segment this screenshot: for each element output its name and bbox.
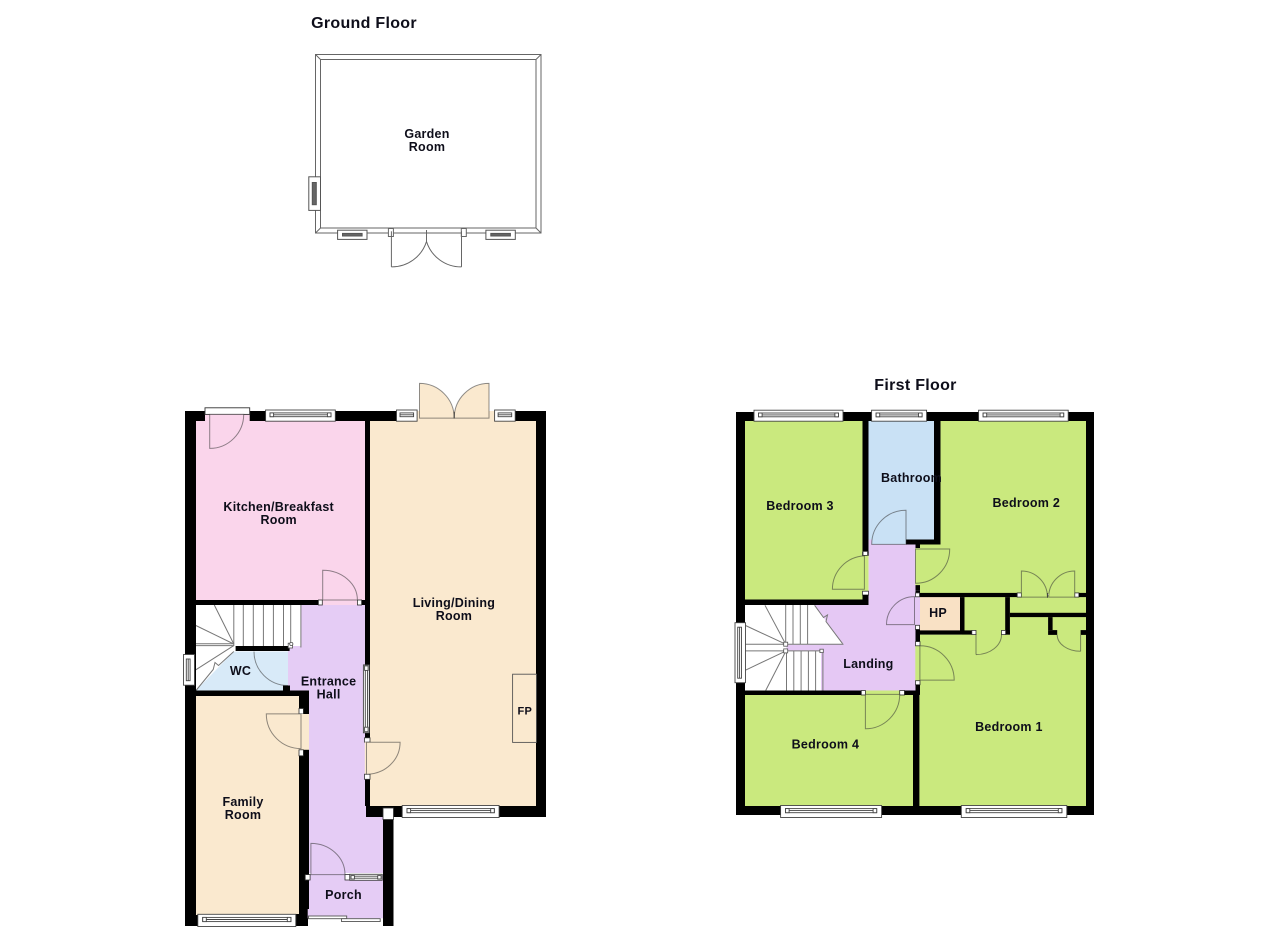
svg-text:Entrance: Entrance	[301, 675, 357, 689]
svg-text:Family: Family	[222, 795, 263, 809]
svg-text:WC: WC	[230, 664, 251, 678]
svg-text:First Floor: First Floor	[874, 377, 956, 394]
svg-text:Room: Room	[225, 808, 261, 822]
svg-text:Room: Room	[409, 140, 445, 154]
svg-text:Room: Room	[436, 609, 472, 623]
svg-text:Landing: Landing	[843, 657, 893, 671]
svg-text:Bedroom 2: Bedroom 2	[993, 496, 1061, 510]
svg-text:Ground Floor: Ground Floor	[311, 15, 417, 32]
svg-text:Room: Room	[260, 513, 296, 527]
svg-text:HP: HP	[929, 606, 947, 620]
svg-text:Bedroom 3: Bedroom 3	[766, 499, 834, 513]
svg-text:Hall: Hall	[317, 688, 341, 702]
svg-text:Porch: Porch	[325, 888, 362, 902]
svg-text:Kitchen/Breakfast: Kitchen/Breakfast	[223, 500, 334, 514]
svg-text:Bedroom 1: Bedroom 1	[975, 720, 1043, 734]
svg-text:Bedroom 4: Bedroom 4	[792, 738, 860, 752]
svg-text:FP: FP	[518, 706, 533, 718]
svg-text:Living/Dining: Living/Dining	[413, 596, 495, 610]
svg-text:Garden: Garden	[404, 127, 449, 141]
svg-text:Bathroom: Bathroom	[881, 471, 942, 485]
